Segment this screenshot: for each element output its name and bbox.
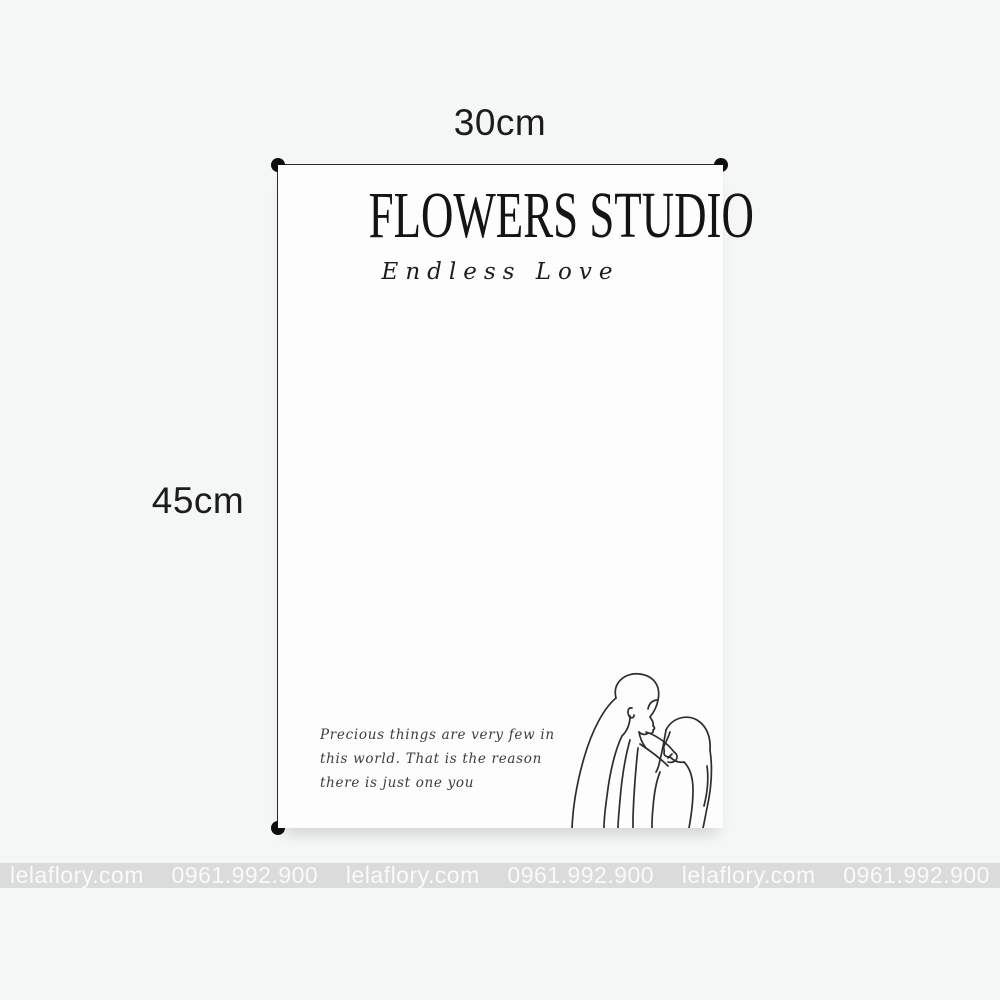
watermark-item: lelaflory.com <box>10 862 144 889</box>
watermark-item: 0961.992.900 <box>843 862 990 889</box>
watermark-bar: lelaflory.com0961.992.900lelaflory.com09… <box>0 863 1000 888</box>
brand-subtitle: Endless Love <box>278 259 723 285</box>
watermark-item: 0961.992.900 <box>507 862 654 889</box>
height-dimension-label: 45cm <box>128 480 268 522</box>
quote-line: there is just one you <box>320 771 555 795</box>
quote-text: Precious things are very few in this wor… <box>320 723 555 795</box>
brand-title-text: FLOWERS STUDIO <box>369 183 754 249</box>
watermark-item: lelaflory.com <box>346 862 480 889</box>
flower-wrapping-paper-sheet: FLOWERS STUDIO Endless Love Precious thi… <box>278 165 723 828</box>
width-dimension-label: 30cm <box>278 102 722 144</box>
quote-line: this world. That is the reason <box>320 747 555 771</box>
quote-line: Precious things are very few in <box>320 723 555 747</box>
product-mockup-image: 30cm 45cm FLOWERS STUDIO Endless Love Pr… <box>0 0 1000 1000</box>
watermark-item: lelaflory.com <box>682 862 816 889</box>
couple-line-art-illustration <box>563 670 717 828</box>
brand-title: FLOWERS STUDIO <box>278 183 723 249</box>
watermark-item: 0961.992.900 <box>172 862 319 889</box>
